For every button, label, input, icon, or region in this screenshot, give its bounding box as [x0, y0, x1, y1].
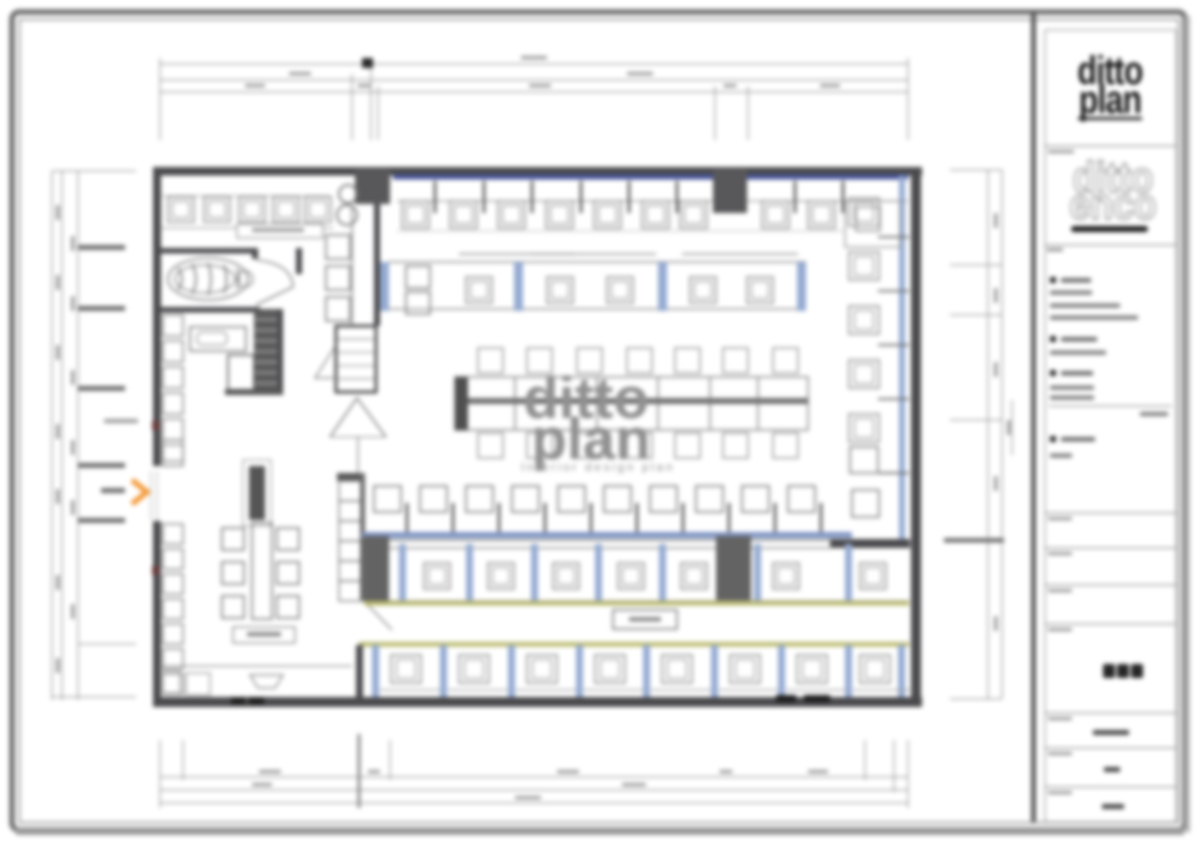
- svg-text:plan: plan: [1079, 77, 1142, 122]
- svg-text:enco: enco: [1069, 179, 1156, 229]
